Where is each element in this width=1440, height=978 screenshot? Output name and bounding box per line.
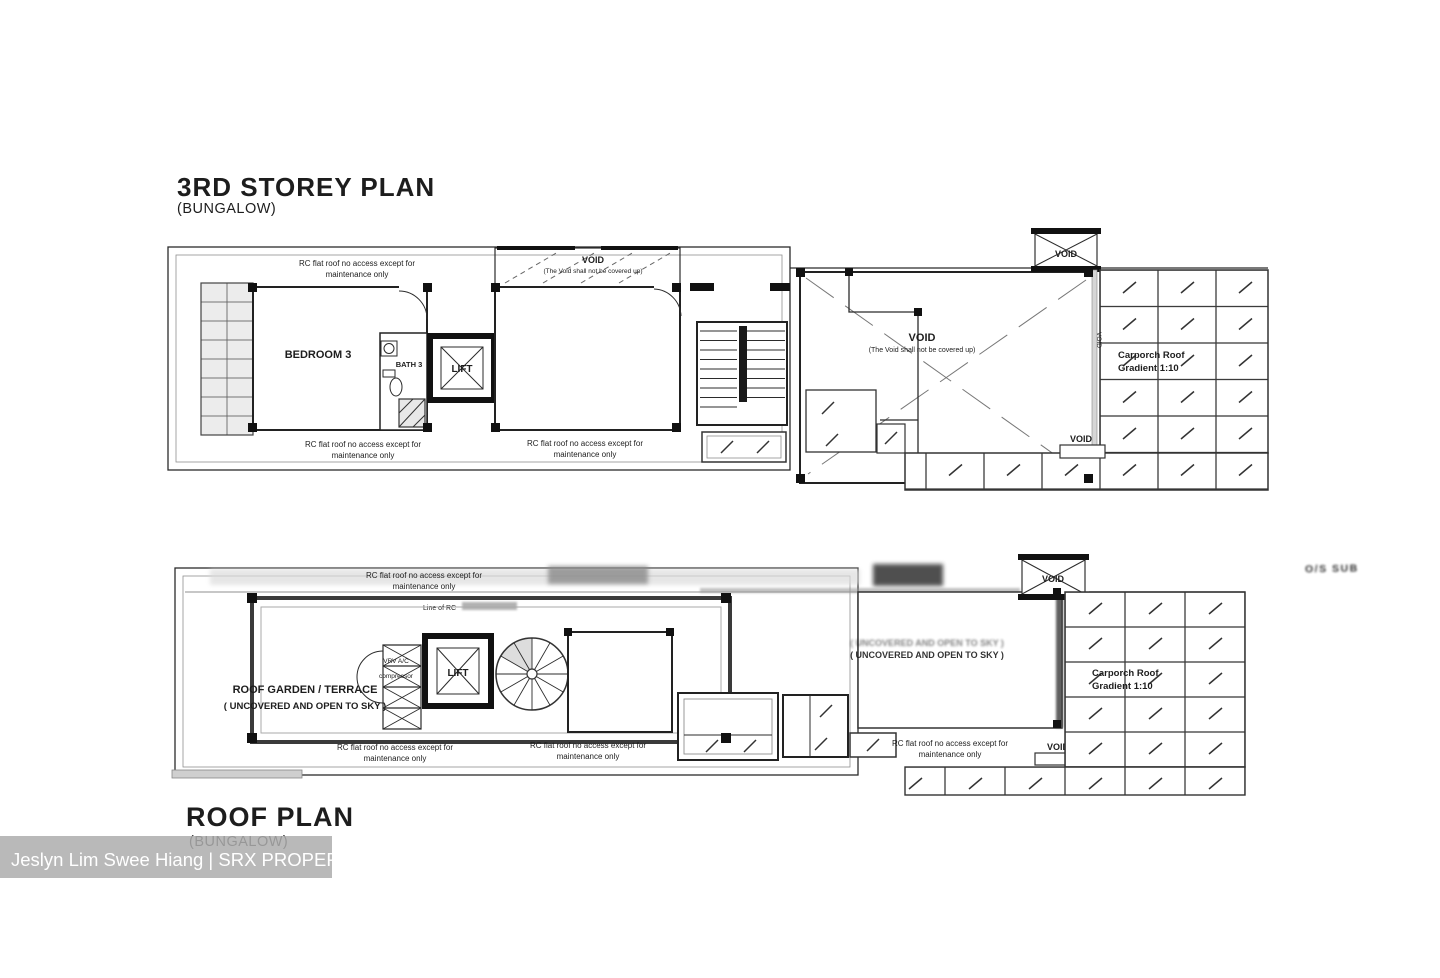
uncovered-label-ghost: ( UNCOVERED AND OPEN TO SKY )	[850, 638, 1004, 648]
note-rc-flat-roof: maintenance only	[554, 450, 617, 459]
void-label: VOID	[1070, 434, 1093, 444]
roof-garden-label: ROOF GARDEN / TERRACE	[233, 684, 378, 696]
bath3-label: BATH 3	[396, 360, 423, 369]
note-rc-flat-roof: RC flat roof no access except for	[305, 440, 421, 449]
carporch-roof-label: Carporch Roof	[1092, 668, 1159, 679]
ledge	[172, 770, 302, 778]
line-of-rc-label: Line of RC	[423, 605, 456, 612]
note-rc-flat-roof: maintenance only	[393, 582, 456, 591]
glass-panel	[806, 390, 876, 452]
void-label: VOID	[1095, 332, 1102, 348]
roof-garden-label: ( UNCOVERED AND OPEN TO SKY )	[224, 701, 386, 712]
void-label: VOID	[1042, 574, 1065, 584]
floor-plan-drawing: 3RD STOREY PLAN (BUNGALOW) RC flat roof …	[0, 0, 1440, 978]
roof-room	[568, 632, 672, 732]
watermark: Jeslyn Lim Swee Hiang | SRX PROPERTY	[0, 836, 363, 878]
tiled-roof-strip	[201, 283, 253, 435]
lift-shaft: LIFT	[425, 636, 491, 706]
vrv-compressor-label: VRV A/C	[383, 658, 409, 665]
plan1-title: 3RD STOREY PLAN	[177, 172, 435, 202]
roof-plan: RC flat roof no access except for mainte…	[172, 554, 1245, 850]
uncovered-label: ( UNCOVERED AND OPEN TO SKY )	[850, 650, 1004, 660]
boundary-stamp: O/S SUB	[1305, 562, 1359, 575]
void-strip: VOID (The Void shall not be covered up)	[495, 246, 680, 287]
void-box-top: VOID	[1031, 228, 1101, 272]
third-storey-plan: 3RD STOREY PLAN (BUNGALOW) RC flat roof …	[168, 172, 1268, 490]
note-rc-flat-roof: maintenance only	[326, 270, 389, 279]
void-label: VOID	[1055, 249, 1078, 259]
bedroom3-label: BEDROOM 3	[285, 349, 352, 361]
note-rc-flat-roof: maintenance only	[332, 451, 395, 460]
floor-plan-page: 3RD STOREY PLAN (BUNGALOW) RC flat roof …	[0, 0, 1440, 978]
vrv-compressor-label: compressor	[379, 673, 414, 680]
uncovered-open-area: ( UNCOVERED AND OPEN TO SKY ) ( UNCOVERE…	[850, 592, 1063, 728]
smudge	[462, 602, 517, 610]
void-label: VOID	[582, 255, 605, 265]
note-rc-flat-roof: RC flat roof no access except for	[337, 743, 453, 752]
void-note: (The Void shall not be covered up)	[543, 268, 642, 275]
lift-label: LIFT	[451, 364, 472, 375]
spiral-staircase	[496, 638, 568, 710]
note-rc-flat-roof: RC flat roof no access except for	[530, 741, 646, 750]
note-rc-flat-roof: maintenance only	[557, 752, 620, 761]
void-label: VOID	[909, 332, 936, 344]
plan1-subtitle: (BUNGALOW)	[177, 201, 276, 217]
note-rc-flat-roof: maintenance only	[364, 754, 427, 763]
watermark-text: Jeslyn Lim Swee Hiang | SRX PROPERTY	[11, 849, 363, 870]
carporch-roof-label: Carporch Roof	[1118, 350, 1185, 361]
plan2-title: ROOF PLAN	[186, 802, 354, 832]
hall-room	[495, 284, 681, 430]
carporch-roof-label: Gradient 1:10	[1118, 363, 1179, 374]
note-rc-flat-roof: RC flat roof no access except for	[892, 739, 1008, 748]
lift-shaft: LIFT	[430, 336, 494, 400]
note-rc-flat-roof: maintenance only	[919, 750, 982, 759]
bath-3: BATH 3	[380, 333, 427, 430]
void-note: (The Void shall not be covered up)	[869, 347, 976, 354]
note-rc-flat-roof: RC flat roof no access except for	[527, 439, 643, 448]
note-rc-flat-roof: RC flat roof no access except for	[366, 571, 482, 580]
carporch-roof-label: Gradient 1:10	[1092, 681, 1153, 692]
lift-label: LIFT	[447, 668, 468, 679]
note-rc-flat-roof: RC flat roof no access except for	[299, 259, 415, 268]
staircase	[690, 283, 790, 462]
